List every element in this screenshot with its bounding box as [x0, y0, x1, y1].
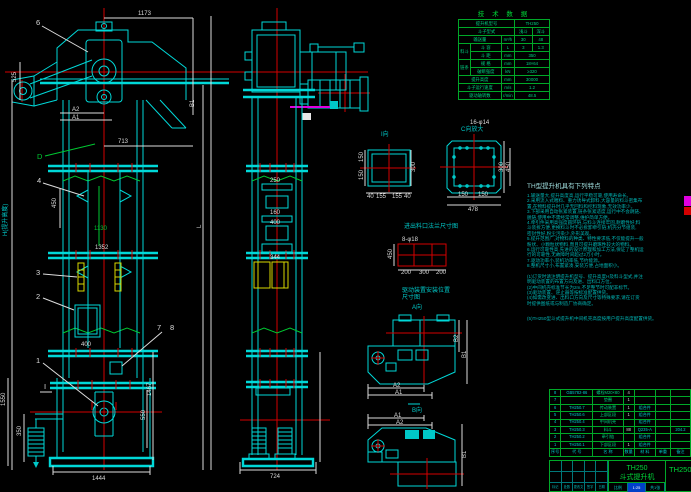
- svg-text:8-φ18: 8-φ18: [402, 237, 419, 243]
- product-name: 斗式提升机: [620, 474, 655, 481]
- svg-text:200: 200: [401, 270, 412, 276]
- svg-text:1467: 1467: [147, 382, 153, 396]
- svg-text:I: I: [44, 382, 46, 391]
- anchor-bolt-layout: 8-φ18 450 200 300 200: [388, 237, 447, 276]
- product-model: TH250: [626, 465, 647, 472]
- bom-row: 6TH250.7传动装置1组合件: [550, 404, 691, 411]
- svg-text:L: L: [197, 224, 203, 228]
- svg-text:300: 300: [499, 161, 505, 172]
- table-row: 斗 距mm350: [459, 52, 550, 60]
- svg-text:40: 40: [404, 194, 411, 200]
- svg-text:150: 150: [359, 151, 365, 162]
- svg-text:8: 8: [170, 323, 174, 332]
- svg-text:I向: I向: [381, 130, 389, 138]
- svg-text:40: 40: [367, 194, 374, 200]
- svg-text:6: 6: [36, 18, 40, 27]
- svg-text:尺寸图: 尺寸图: [402, 293, 420, 301]
- svg-text:A1: A1: [394, 413, 402, 419]
- features-heading: TH型提升机具有下列特点: [527, 180, 691, 190]
- svg-text:4: 4: [37, 176, 41, 185]
- svg-text:155: 155: [376, 194, 387, 200]
- svg-text:450: 450: [388, 248, 394, 259]
- svg-text:300: 300: [411, 161, 417, 172]
- svg-text:进出料口法兰尺寸图: 进出料口法兰尺寸图: [404, 222, 458, 230]
- bom-row: 7垫圈1: [550, 397, 691, 404]
- svg-text:A1: A1: [395, 390, 403, 396]
- table-row: 斗子运行速度m/s1.2: [459, 84, 550, 92]
- table-row: 驱动轴转数r/min48.5: [459, 92, 550, 100]
- svg-text:450: 450: [506, 161, 512, 172]
- svg-text:16-φ14: 16-φ14: [470, 120, 490, 126]
- svg-text:200: 200: [436, 270, 447, 276]
- bom-table: 8GB5782-86螺栓M20×804 7垫圈1 6TH250.7传动装置1组合…: [549, 389, 691, 457]
- svg-text:H(提升高度): H(提升高度): [1, 204, 9, 236]
- svg-text:A向: A向: [412, 303, 422, 311]
- table-row: 斗子型式浅斗深斗: [459, 28, 550, 36]
- svg-text:150: 150: [458, 192, 469, 198]
- table-row: 输送量m³/h3048: [459, 36, 550, 44]
- table-row: 链条规 格mm18×64: [459, 60, 550, 68]
- svg-text:350: 350: [17, 425, 23, 436]
- bom-row: 4TH250.4中间机壳组合件: [550, 419, 691, 426]
- svg-text:1: 1: [36, 356, 40, 365]
- svg-text:B1: B1: [190, 99, 196, 107]
- svg-text:B1: B1: [462, 350, 468, 358]
- svg-text:1444: 1444: [92, 476, 106, 482]
- svg-text:A1: A1: [72, 115, 80, 121]
- table-row: 提升机型号TH250: [459, 20, 550, 28]
- svg-text:250: 250: [270, 178, 281, 184]
- svg-text:A2: A2: [72, 107, 80, 113]
- bom-header-row: 序号代 号名 称数量材 料单重备注: [550, 449, 691, 456]
- product-title: TH250 斗式提升机: [609, 461, 665, 482]
- features-notes-block: TH型提升机具有下列特点 1.输送量大,提升高度高,运行平稳可靠,使用寿命长。 …: [527, 180, 691, 322]
- svg-text:344: 344: [270, 255, 281, 261]
- title-block: 标记 处数 更改文件号 签字 日期 TH250 斗式提升机 比例 1:25 共1…: [549, 460, 691, 492]
- svg-text:1130: 1130: [94, 226, 108, 232]
- svg-text:B1: B1: [462, 450, 468, 458]
- svg-text:478: 478: [468, 207, 479, 213]
- svg-text:525: 525: [12, 71, 18, 82]
- svg-text:2: 2: [36, 292, 40, 301]
- svg-text:A2: A2: [393, 383, 401, 389]
- svg-text:D: D: [37, 152, 43, 161]
- svg-text:C向放大: C向放大: [461, 125, 483, 133]
- svg-text:400: 400: [270, 220, 281, 226]
- svg-text:400: 400: [81, 342, 92, 348]
- svg-text:B2: B2: [454, 334, 460, 342]
- svg-text:1550: 1550: [1, 392, 7, 406]
- view-a: 驱动装置安装位置 尺寸图 A向 B2 B1 A2 A1: [368, 286, 468, 399]
- table-row: 提升高度mm30000: [459, 76, 550, 84]
- side-view-head: [12, 22, 229, 128]
- technical-data-table: 技 术 数 据 提升机型号TH250 斗子型式浅斗深斗 输送量m³/h3048 …: [458, 8, 550, 100]
- order-note-final: (5)TH250型斗式提升机中间机壳高度按用户提升高度配置供货。: [527, 316, 691, 321]
- svg-text:550: 550: [141, 409, 147, 420]
- tech-table-title: 技 术 数 据: [458, 8, 550, 18]
- centerlines: [5, 8, 370, 470]
- flange-detail-c: C向放大 16-φ14 300 450 150 150 478: [440, 120, 512, 213]
- drawing-number: TH250: [666, 461, 691, 491]
- title-block-name-zone: TH250 斗式提升机 比例 1:25 共1张: [609, 461, 666, 491]
- svg-text:150: 150: [478, 192, 489, 198]
- bom-row: 5TH250.6上部区段1组合件: [550, 412, 691, 419]
- bom-row: 1TH250.1下部区段1组合件: [550, 441, 691, 448]
- svg-text:300: 300: [419, 270, 430, 276]
- svg-text:713: 713: [118, 139, 129, 145]
- side-view-dims: 1173 713 525 A2 A1 B1 1130 450 1352 400 …: [1, 11, 211, 482]
- side-view-chain: [78, 263, 121, 291]
- svg-text:1173: 1173: [138, 11, 152, 17]
- signature-row: 标记 处数 更改文件号 签字 日期: [550, 483, 608, 491]
- view-b: B向 A1 A2 B1: [368, 404, 468, 489]
- front-view-head: [243, 22, 368, 120]
- bom-row: 3TH250.3料斗88Q235-A204.2: [550, 426, 691, 433]
- svg-text:7: 7: [157, 323, 161, 332]
- svg-text:1352: 1352: [95, 245, 109, 251]
- svg-text:B向: B向: [412, 406, 422, 414]
- bom-row: 2TH250.2牵引链组合件: [550, 434, 691, 441]
- svg-text:724: 724: [270, 474, 281, 480]
- svg-text:450: 450: [52, 197, 58, 208]
- title-block-revision-zone: 标记 处数 更改文件号 签字 日期: [550, 461, 609, 491]
- cad-drawing-screen: { "callouts": {"n1":"1","n2":"2","n3":"3…: [0, 0, 691, 491]
- svg-text:驱动装置安装位置: 驱动装置安装位置: [402, 286, 450, 294]
- svg-text:3: 3: [36, 268, 40, 277]
- svg-text:A2: A2: [396, 420, 404, 426]
- bom-row: 8GB5782-86螺栓M20×804: [550, 390, 691, 397]
- svg-text:160: 160: [270, 210, 281, 216]
- table-row: 破断强度kN≥320: [459, 68, 550, 76]
- flange-detail-i: I向 150 150 300 40 155 155 40: [359, 130, 417, 200]
- svg-text:150: 150: [359, 169, 365, 180]
- table-row: 料斗斗 容L31.3: [459, 44, 550, 52]
- svg-text:155: 155: [392, 194, 403, 200]
